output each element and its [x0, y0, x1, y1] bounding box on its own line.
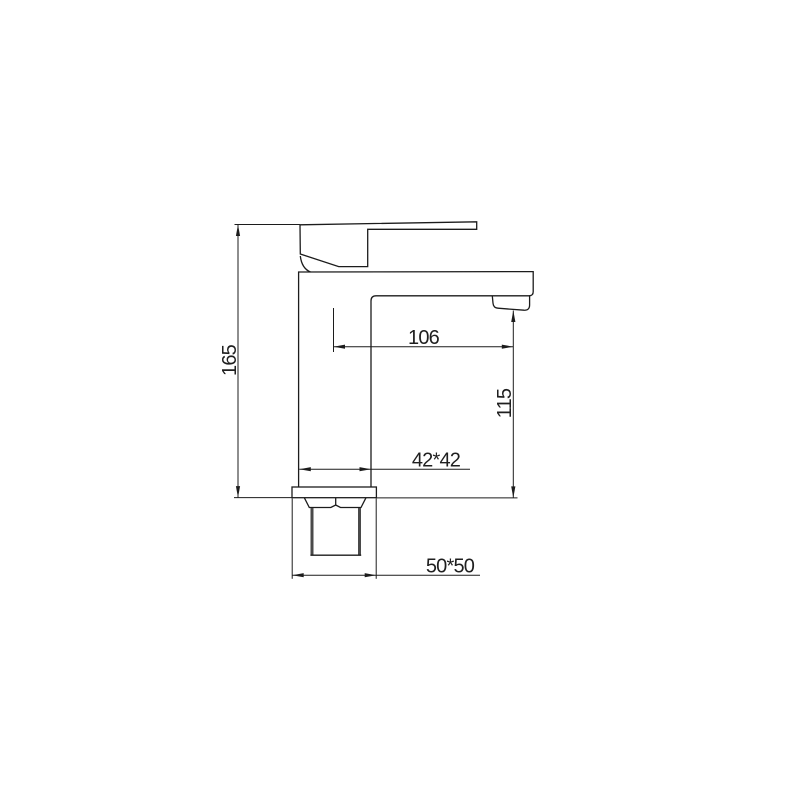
dimension-body-section: 42*42: [299, 450, 470, 472]
arrowhead-left: [292, 573, 304, 577]
dim-overall-height-label: 165: [219, 344, 241, 376]
arrowhead-right: [360, 467, 372, 471]
arrowhead-up: [511, 311, 515, 323]
arrowhead-left: [299, 467, 311, 471]
dimension-base-section: 50*50: [292, 499, 480, 579]
arrowhead-down: [511, 486, 515, 498]
arrowhead-right: [365, 573, 377, 577]
dimension-overall-height: 165: [219, 225, 300, 498]
faucet-base-plate: [292, 487, 376, 498]
arrowhead-down: [236, 486, 240, 498]
dim-base-section-label: 50*50: [426, 556, 475, 578]
arrowhead-right: [502, 345, 514, 349]
arrowhead-left: [334, 345, 346, 349]
dim-body-section-label: 42*42: [412, 450, 461, 472]
dim-spout-reach-label: 106: [408, 327, 440, 349]
arrowhead-up: [236, 225, 240, 237]
faucet-handle-fillet-arc: [300, 256, 310, 272]
dimension-spout-reach: 106: [334, 308, 514, 352]
faucet-technical-drawing: 165 106 115 42*42: [0, 0, 800, 800]
faucet-aerator: [492, 296, 529, 310]
faucet-outline: [292, 222, 533, 555]
canvas: 165 106 115 42*42: [0, 0, 800, 800]
dim-outlet-height-label: 115: [494, 388, 516, 418]
faucet-lever-handle: [300, 222, 477, 267]
